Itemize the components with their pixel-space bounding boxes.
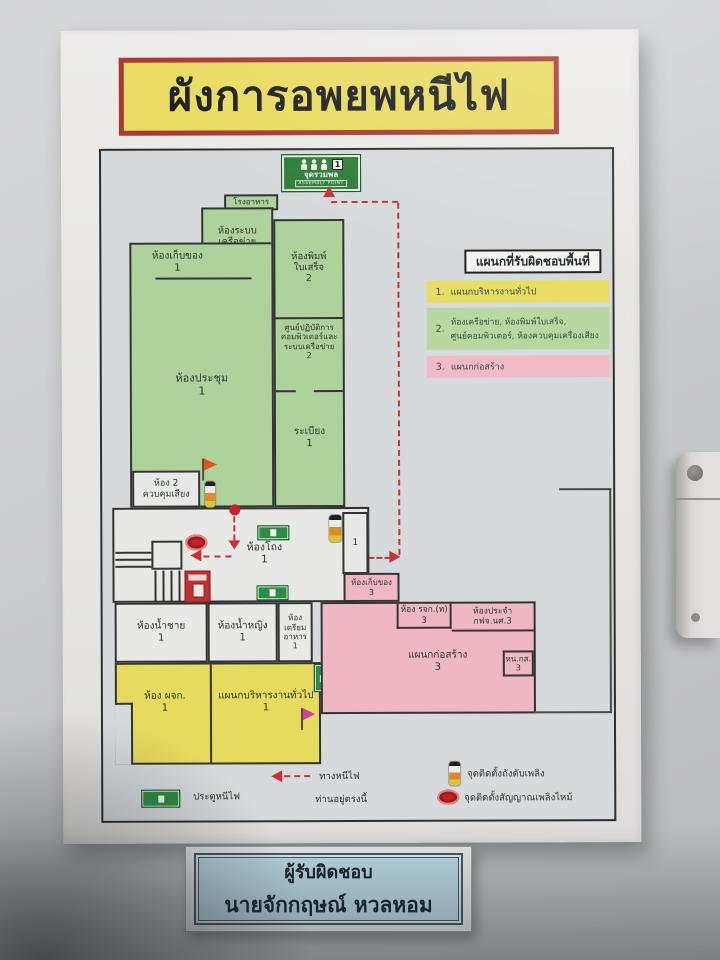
legend-escape-route-label: ทางหนีไฟ: [319, 771, 389, 782]
room-sound-label: ห้อง 2 ควบคุมเสียง: [143, 478, 190, 499]
legend-item-admin: 1. แผนกบริหารงานทั่วไป: [426, 280, 609, 303]
room-food-prep-label: ห้อง เตรียม อาหาร 1: [283, 613, 306, 651]
legend-panel-header: แผนกที่รับผิดชอบพื้นที่: [464, 249, 601, 273]
legend-route-dash: [284, 775, 310, 777]
assembly-label-english: ASSEMBLY POINT: [295, 180, 346, 188]
people-icon: [299, 159, 329, 170]
room-toilet-men: ห้องน้ำชาย 1: [115, 603, 208, 663]
room-sound-control: ห้อง 2 ควบคุมเสียง: [132, 471, 200, 508]
route-dash-top: [331, 201, 398, 203]
room-meeting-label: ห้องประชุม 1: [132, 372, 272, 398]
legend-item-construction: 3. แผนกก่อสร้าง: [427, 355, 610, 378]
room-storage1-label: ห้องเก็บของ 1: [135, 250, 219, 274]
stairs-icon: [162, 571, 164, 602]
fire-alarm-icon: [185, 535, 207, 551]
room-construction-label: แผนกก่อสร้าง 3: [378, 649, 498, 673]
wall-storage1: [155, 277, 251, 279]
device-knob: [687, 465, 703, 481]
room-hnks-label: หน.กส. 3: [505, 654, 531, 673]
route-dash-left: [203, 555, 231, 557]
legend-fire-alarm-icon: [437, 790, 459, 805]
room-storage3: ห้องเก็บของ 3: [343, 573, 399, 602]
legend-extinguisher-label: จุดติดตั้งถังดับเพลิง: [467, 768, 577, 780]
wall-computer-balcony-b: [314, 390, 343, 392]
room-balcony-label: ระเบียง 1: [276, 426, 343, 450]
route-arrow-left-icon: [190, 550, 201, 562]
room-toilet-women: ห้องน้ำหญิง 1: [208, 602, 278, 662]
legend-item-network: 2. ห้องเครือข่าย, ห้องพิมพ์ใบเสร็จ, ศูนย…: [427, 307, 610, 350]
device-seam: [676, 498, 720, 500]
legend-you-are-here-label: ท่านอยู่ตรงนี้: [315, 794, 395, 805]
room-prajam: ห้องประจำ กฟจ.นศ.3: [452, 603, 534, 631]
room-receipt-label: ห้องพิมพ์ ใบเสร็จ 2: [275, 251, 342, 285]
legend-item-2-num: 2.: [436, 323, 445, 334]
evacuation-plan-poster: ผังการอพยพหนีไฟ 1 จุดรวมพล ASSEMBLY POIN…: [61, 29, 642, 844]
wall-outline-right: [609, 488, 612, 713]
legend-exit-door-label: ประตูหนีไฟ: [193, 791, 263, 802]
exit-sign-icon: [257, 525, 289, 540]
fire-hose-cabinet-icon: [184, 570, 210, 602]
wall-outline-top: [559, 488, 611, 490]
route-dash-down: [233, 516, 235, 540]
room-small-1: 1: [342, 512, 368, 574]
assembly-label-thai: จุดรวมพล: [304, 171, 338, 179]
room-toilet-men-label: ห้องน้ำชาย 1: [137, 621, 185, 645]
exit-sign-icon: [257, 585, 289, 600]
room-toilet-women-label: ห้องน้ำหญิง 1: [218, 620, 268, 644]
poster-title-banner: ผังการอพยพหนีไฟ: [119, 56, 559, 136]
device-screw: [691, 613, 700, 622]
room-manager-label: ห้อง ผจก. 1: [121, 690, 209, 714]
assembly-point-sign: 1 จุดรวมพล ASSEMBLY POINT: [281, 154, 361, 192]
legend-item-1-num: 1.: [435, 286, 444, 297]
legend-extinguisher-icon: [449, 762, 460, 786]
legend-exit-sign-icon: [141, 790, 180, 808]
fire-extinguisher-icon: [329, 515, 341, 542]
legend-item-3-label: แผนกก่อสร้าง: [451, 359, 504, 373]
route-dash-hall-right: [368, 557, 390, 559]
stairs-icon: [154, 571, 156, 602]
room-cafeteria-label: โรงอาหาร: [233, 198, 269, 208]
room-hall: ห้องโถง 1 1: [112, 507, 369, 603]
stairs-icon: [170, 571, 172, 602]
poster-title: ผังการอพยพหนีไฟ: [168, 62, 510, 129]
room-prajam-label: ห้องประจำ กฟจ.นศ.3: [473, 606, 512, 626]
legend-fire-alarm-label: จุดติดตั้งสัญญาณเพลิงไหม้: [464, 792, 594, 804]
zone-construction-pink: ห้อง รจก.(ท) 3 ห้องประจำ กฟจ.นศ.3 หน.กส.…: [321, 601, 536, 714]
stairs-icon: [178, 571, 180, 602]
room-rjk-label: ห้อง รจก.(ท) 3: [400, 605, 447, 625]
room-computer-label: ศูนย์ปฏิบัติการ คอมพิวเตอร์และ ระบบเครือ…: [276, 323, 343, 361]
stairs-icon: [115, 552, 151, 554]
fire-extinguisher-icon: [205, 481, 215, 507]
legend-panel-header-label: แผนกที่รับผิดชอบพื้นที่: [476, 252, 590, 271]
stairs-icon: [115, 566, 151, 568]
zone-admin-yellow: ห้อง ผจก. 1 แผนกบริหารงานทั่วไป 1: [115, 662, 321, 765]
room-storage3-label: ห้องเก็บของ 3: [351, 578, 392, 597]
room-rjk: ห้อง รจก.(ท) 3: [397, 604, 452, 629]
wall-receipt-computer: [276, 317, 343, 319]
responsible-sign-name: นายจักกฤษณ์ หวลหอม: [224, 889, 432, 922]
route-arrow-down-icon: [228, 540, 240, 549]
wall-manager-admin: [210, 664, 212, 762]
legend-item-1-label: แผนกบริหารงานทั่วไป: [451, 284, 537, 298]
wall-mounted-device: [676, 452, 720, 638]
room-column-right: ห้องพิมพ์ ใบเสร็จ 2 ศูนย์ปฏิบัติการ คอมพ…: [273, 219, 345, 507]
room-food-prep: ห้อง เตรียม อาหาร 1: [278, 602, 313, 662]
route-arrow-up-icon: [323, 186, 335, 197]
legend-item-3-num: 3.: [436, 361, 445, 372]
legend-item-2-label: ห้องเครือข่าย, ห้องพิมพ์ใบเสร็จ, ศูนย์คอ…: [451, 314, 599, 343]
assembly-sign-icons: 1: [299, 159, 343, 170]
floor-plan: 1 จุดรวมพล ASSEMBLY POINT โรงอาหาร ห้องร…: [99, 147, 616, 823]
room-hnks: หน.กส. 3: [503, 650, 534, 676]
route-arrow-right-icon: [389, 551, 400, 563]
wall-outline-bottom: [534, 711, 612, 713]
assembly-number-badge: 1: [332, 159, 343, 170]
stairs-icon: [115, 559, 151, 561]
wall-computer-balcony-a: [276, 390, 296, 392]
responsible-sign-title: ผู้รับผิดชอบ: [284, 857, 372, 886]
responsible-person-sign: ผู้รับผิดชอบ นายจักกฤษณ์ หวลหอม: [185, 846, 472, 932]
wall-notch: [115, 703, 133, 765]
route-dash-right: [397, 203, 400, 555]
room-small-1-label: 1: [352, 538, 358, 549]
you-are-here-dot: [229, 504, 240, 515]
legend-route-arrow-icon: [271, 770, 282, 782]
stair-landing: [151, 541, 182, 570]
